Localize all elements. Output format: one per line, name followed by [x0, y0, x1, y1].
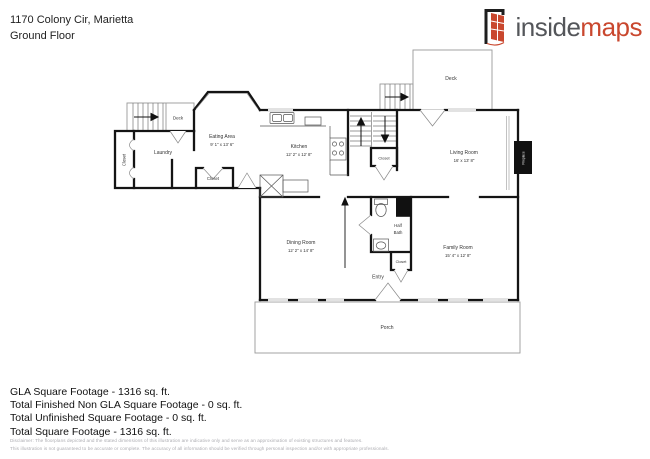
label-kitchen: Kitchen [291, 144, 308, 150]
counter-peninsula [283, 180, 308, 192]
label-dining-room-dims: 12' 2" x 14' 8" [288, 248, 314, 253]
label-half-bath-2: Bath [394, 230, 403, 235]
room-labels: Deck Laundry Closet Closet Eating Area 9… [122, 76, 526, 331]
door-entry-closet [394, 270, 408, 282]
label-living-room: Living Room [450, 150, 478, 156]
door-eating-dining [238, 173, 256, 188]
outdoor-structures [127, 50, 520, 353]
wall-bay-window [194, 92, 260, 110]
label-deck-left: Deck [173, 116, 184, 121]
logo-text-inside: inside [515, 12, 580, 42]
door-stairs-closet [375, 166, 393, 180]
label-eating-area-dims: 9' 1" x 13' 6" [210, 142, 234, 147]
walls [115, 92, 518, 300]
door-half-bath [359, 215, 371, 235]
square-footage-summary: GLA Square Footage - 1316 sq. ft. Total … [10, 386, 242, 439]
door-deck-laundry [170, 131, 186, 143]
wall-left-wing [115, 131, 260, 188]
label-closet-left: Closet [122, 153, 127, 166]
disclaimer-line-1: Disclaimer: The floorplans depicted and … [10, 437, 389, 445]
label-kitchen-dims: 12' 2" x 12' 8" [286, 152, 312, 157]
label-closet-corridor: Closet [207, 176, 220, 181]
floorplan-svg: Deck Laundry Closet Closet Eating Area 9… [108, 40, 553, 380]
property-address: 1170 Colony Cir, Marietta [10, 12, 133, 28]
toilet-bowl [376, 204, 386, 217]
door-deck-living [420, 110, 445, 126]
label-family-room-dims: 15' 4" x 12' 8" [445, 253, 471, 258]
label-closet-stairs: Closet [378, 156, 390, 161]
logo-text-maps: maps [580, 12, 642, 42]
stat-gla: GLA Square Footage - 1316 sq. ft. [10, 386, 242, 399]
door-closet-lower [130, 167, 135, 179]
label-eating-area: Eating Area [209, 134, 235, 140]
kitchen-counter-right [330, 126, 348, 175]
label-dining-room: Dining Room [287, 240, 316, 246]
label-half-bath-1: Half [394, 223, 402, 228]
label-fireplace: Fireplace [522, 151, 526, 164]
door-closet-upper [130, 139, 135, 151]
door-front-entry [375, 283, 401, 300]
label-porch: Porch [380, 325, 393, 331]
logo-wordmark: insidemaps [515, 14, 642, 40]
stat-non-gla: Total Finished Non GLA Square Footage - … [10, 399, 242, 412]
living-room-window [507, 116, 510, 190]
disclaimer-line-2: This illustration is not guaranteed to b… [10, 445, 389, 453]
disclaimer: Disclaimer: The floorplans depicted and … [10, 437, 389, 453]
label-deck-right: Deck [445, 76, 457, 82]
stat-unfinished: Total Unfinished Square Footage - 0 sq. … [10, 412, 242, 425]
label-laundry: Laundry [154, 150, 173, 156]
label-living-room-dims: 16' x 13' 8" [454, 158, 475, 163]
floorplan-page: 1170 Colony Cir, Marietta Ground Floor i… [0, 0, 650, 459]
label-entry: Entry [372, 275, 384, 281]
label-closet-entry: Closet [396, 260, 408, 264]
dishwasher [305, 117, 321, 125]
label-family-room: Family Room [443, 245, 472, 251]
chimney-chase [396, 198, 411, 217]
bath-sink [374, 239, 389, 252]
stove [330, 138, 346, 160]
